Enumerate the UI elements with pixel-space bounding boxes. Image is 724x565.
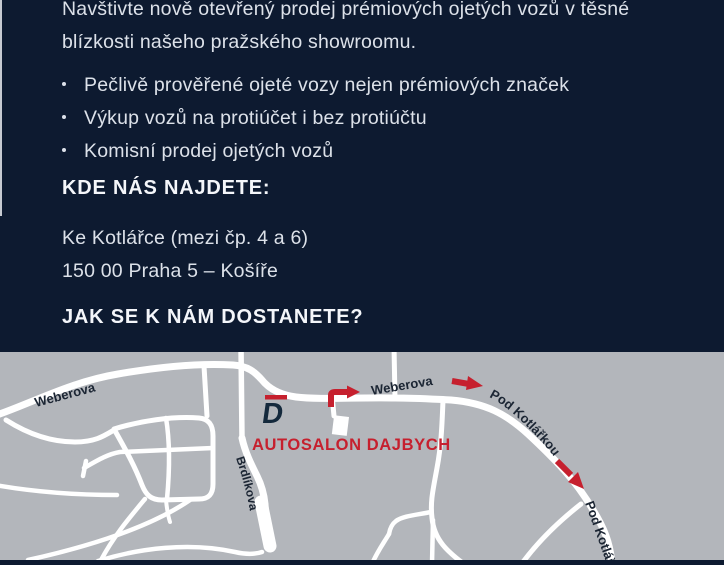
bullet-icon [62, 148, 66, 152]
feature-list: Pečlivě prověřené ojeté vozy nejen prémi… [62, 69, 569, 168]
bullet-icon [62, 82, 66, 86]
list-item-text: Pečlivě prověřené ojeté vozy nejen prémi… [84, 69, 569, 102]
list-item-text: Komisní prodej ojetých vozů [84, 135, 333, 168]
where-heading: KDE NÁS NAJDETE: [62, 176, 270, 200]
bullet-icon [62, 115, 66, 119]
flyer-top-section: Navštivte nově otevřený prodej prémiovýc… [0, 0, 724, 353]
road-vertical-north-1 [241, 352, 242, 438]
road-fork-down [432, 520, 433, 560]
list-item: Komisní prodej ojetých vozů [62, 135, 569, 168]
dealer-name-label: AUTOSALON DAJBYCH [252, 436, 451, 454]
road-connector-204 [204, 366, 207, 416]
how-heading: JAK SE K NÁM DOSTANETE? [62, 305, 363, 329]
intro-paragraph: Navštivte nově otevřený prodej prémiovýc… [62, 0, 662, 59]
location-map: Weberova Weberova Pod Kotlářkou Pod Kotl… [0, 352, 724, 560]
road-stub-tick [83, 461, 86, 476]
address-line: 150 00 Praha 5 – Košíře [62, 255, 308, 288]
list-item-text: Výkup vozů na protiúčet i bez protiúčtu [84, 102, 427, 135]
address-line: Ke Kotlářce (mezi čp. 4 a 6) [62, 222, 308, 255]
list-item: Pečlivě prověřené ojeté vozy nejen prémi… [62, 69, 569, 102]
logo-letter: D [260, 398, 285, 430]
list-item: Výkup vozů na protiúčet i bez protiúčtu [62, 102, 569, 135]
dealer-building-marker [332, 415, 349, 436]
address-block: Ke Kotlářce (mezi čp. 4 a 6) 150 00 Prah… [62, 222, 308, 288]
road-brdlikova-wide [261, 502, 270, 546]
map-canvas: Weberova Weberova Pod Kotlářkou Pod Kotl… [0, 352, 724, 560]
left-edge-line [0, 0, 2, 216]
